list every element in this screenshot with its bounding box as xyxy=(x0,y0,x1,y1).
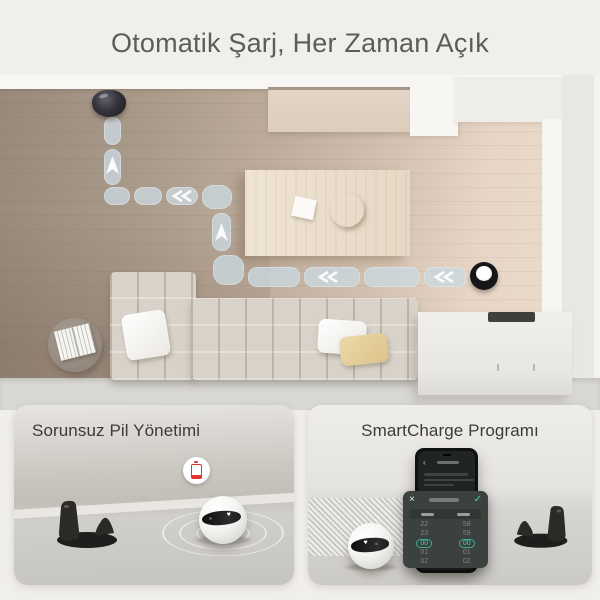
charging-dock-top-view xyxy=(92,90,126,117)
camera-icon xyxy=(375,542,378,545)
smartcharge-card: SmartCharge Programı ♥ ‹ xyxy=(308,405,592,585)
schedule-modal: × ✓ 22 23 00 01 02 58 59 00 xyxy=(403,491,488,568)
app-title-bar xyxy=(437,461,459,464)
right-wall-edge xyxy=(594,75,600,410)
picker-cell-selected: 00 xyxy=(459,539,475,548)
cabinet-handle xyxy=(497,364,499,371)
text-line xyxy=(424,484,454,486)
path-corner xyxy=(213,255,244,285)
picker-cell: 23 xyxy=(420,530,428,538)
phone-camera-icon xyxy=(443,454,451,456)
up-arrow-icon xyxy=(214,221,229,245)
dining-table xyxy=(245,170,410,256)
wall-shelf xyxy=(268,87,413,132)
note-card xyxy=(291,196,317,220)
robot-top-view xyxy=(470,262,498,290)
battery-card-title: Sorunsuz Pil Yönetimi xyxy=(32,421,200,441)
tab-start[interactable] xyxy=(421,513,434,516)
low-battery-badge xyxy=(183,457,210,484)
heart-eyes-icon: ♥ xyxy=(363,539,368,546)
picker-cell: 02 xyxy=(463,558,471,566)
time-picker: 22 23 00 01 02 58 59 00 01 02 xyxy=(403,521,488,566)
tv-cabinet xyxy=(418,312,572,395)
robot: ♥ xyxy=(199,496,247,544)
heart-eyes-icon: ♥ xyxy=(226,512,231,519)
up-arrow-icon xyxy=(105,154,120,178)
close-icon[interactable]: × xyxy=(409,495,415,505)
white-pillow xyxy=(121,309,172,361)
low-battery-icon xyxy=(191,464,202,479)
picker-hours[interactable]: 22 23 00 01 02 xyxy=(416,521,432,566)
picker-tabs xyxy=(410,509,481,519)
back-icon[interactable]: ‹ xyxy=(423,459,426,467)
picker-cell: 01 xyxy=(420,549,428,557)
charging-dock xyxy=(54,491,124,549)
picker-cell-selected: 00 xyxy=(416,539,432,548)
modal-title-bar xyxy=(429,498,459,502)
living-room-scene xyxy=(0,75,600,410)
white-countertop xyxy=(455,77,568,122)
bowl xyxy=(330,193,364,227)
cabinet-slot xyxy=(488,312,535,322)
path-corner xyxy=(104,187,130,205)
left-arrow-icon xyxy=(170,189,194,203)
path-segment xyxy=(364,267,420,287)
white-counter xyxy=(410,75,458,136)
tab-end[interactable] xyxy=(457,513,470,516)
picker-minutes[interactable]: 58 59 00 01 02 xyxy=(459,521,475,566)
text-line xyxy=(424,479,474,481)
modal-header: × ✓ xyxy=(403,491,488,507)
left-arrow-icon xyxy=(432,270,456,284)
path-segment xyxy=(248,267,300,287)
table-grain xyxy=(245,170,410,256)
picker-cell: 01 xyxy=(463,549,471,557)
charging-dock xyxy=(508,497,570,549)
path-segment xyxy=(104,117,121,145)
promo-page: Otomatik Şarj, Her Zaman Açık xyxy=(0,0,600,600)
cabinet-handle xyxy=(533,364,535,371)
text-line xyxy=(424,473,468,476)
picker-cell: 58 xyxy=(463,521,471,529)
camera-icon xyxy=(209,518,212,521)
path-segment xyxy=(134,187,162,205)
confirm-icon[interactable]: ✓ xyxy=(474,495,482,505)
smartcharge-card-title: SmartCharge Programı xyxy=(308,421,592,441)
battery-card: Sorunsuz Pil Yönetimi ♥ xyxy=(14,405,294,585)
path-corner xyxy=(202,185,232,209)
left-arrow-icon xyxy=(316,270,340,284)
robot: ♥ xyxy=(348,523,394,569)
tan-pillow xyxy=(339,333,390,367)
picker-cell: 59 xyxy=(463,530,471,538)
picker-cell: 02 xyxy=(420,558,428,566)
picker-cell: 22 xyxy=(420,521,428,529)
page-title: Otomatik Şarj, Her Zaman Açık xyxy=(0,28,600,59)
